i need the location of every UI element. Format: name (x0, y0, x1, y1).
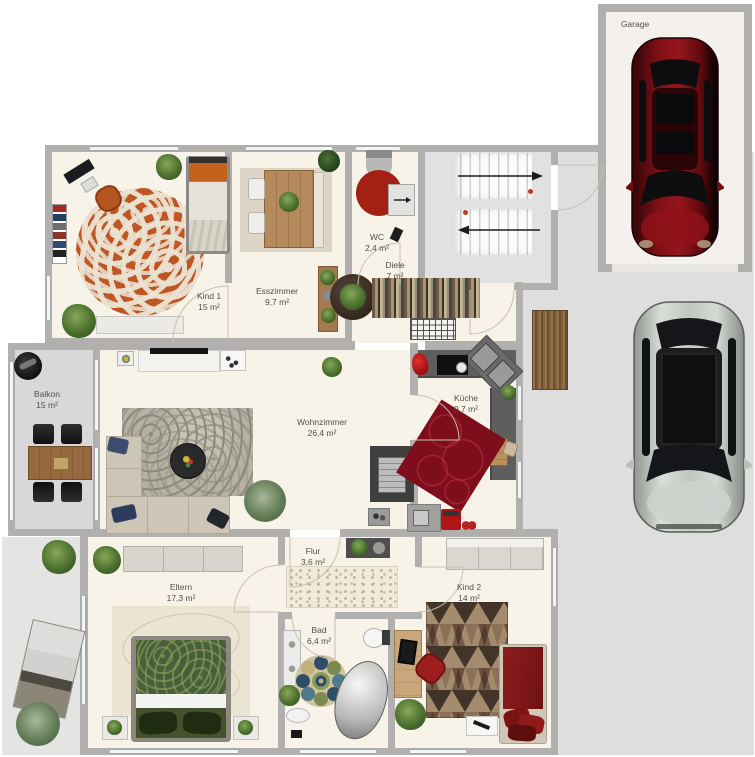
bookshelf (52, 204, 67, 264)
wall (278, 537, 285, 565)
record-disc (122, 355, 130, 363)
plant (395, 699, 426, 730)
stair-flight-lower (452, 209, 532, 255)
balcony-table (28, 446, 92, 480)
sink (286, 708, 310, 723)
round-swirl-rug (76, 188, 204, 316)
wall (551, 145, 558, 165)
plant (93, 546, 121, 574)
toilet-fixture (382, 630, 390, 645)
wardrobe (446, 538, 544, 570)
room-label-balkon: Balkon15 m² (34, 389, 60, 411)
wardrobe-top (447, 539, 543, 547)
toilet-tank (366, 150, 392, 158)
sideboard (96, 316, 184, 334)
sink-square (413, 510, 429, 526)
side-table (368, 508, 390, 526)
shoe-rack (410, 318, 456, 340)
kitchen-counter-bottom (407, 504, 441, 532)
room-label-flur: Flur3,6 m² (301, 546, 325, 568)
tablet (397, 639, 417, 665)
garage-wall (598, 4, 752, 12)
cups (462, 520, 476, 531)
striped-runner-rug (372, 278, 480, 318)
coffee-table (170, 443, 206, 479)
window (81, 596, 87, 704)
window (110, 749, 238, 754)
wc-cabinet (388, 184, 415, 216)
wall (335, 612, 422, 619)
plant (501, 385, 516, 400)
window (410, 749, 466, 754)
room-label-esszimmer: Esszimmer9,7 m² (256, 286, 298, 308)
window (517, 386, 522, 420)
car-red: ` (626, 36, 724, 258)
grill (14, 352, 42, 380)
bath-fixture (291, 730, 302, 738)
wall (551, 210, 558, 290)
plant (320, 270, 335, 285)
bed-duvet (189, 220, 227, 251)
grill-handle (19, 357, 38, 370)
plant (279, 685, 300, 706)
plant (351, 539, 368, 556)
stair-marker (528, 189, 533, 194)
window (46, 276, 51, 320)
bush (42, 540, 76, 574)
wall (415, 537, 422, 567)
tv (150, 348, 208, 354)
hall-rug (286, 566, 398, 608)
decor-bowl (373, 542, 385, 554)
plant (238, 720, 253, 735)
room-label-eltern: Eltern17,3 m² (167, 582, 196, 604)
room-label-diele: Diele7 m² (385, 260, 404, 282)
room-label-kind2: Kind 214 m² (457, 582, 481, 604)
bed-kind1 (186, 156, 230, 254)
wall (418, 145, 425, 290)
bed-pillow (138, 711, 177, 736)
espresso-machine (441, 509, 461, 530)
dining-chair (248, 178, 265, 200)
balcony-chair (61, 424, 82, 444)
wall (93, 343, 355, 350)
record-player (117, 351, 134, 366)
plant (340, 284, 366, 310)
bed-pillow (182, 711, 221, 735)
bowl (456, 362, 467, 373)
plant (107, 720, 122, 735)
car-silver (626, 298, 752, 536)
garage-wall (598, 4, 606, 272)
wall (516, 282, 523, 350)
floor-plan: ` (0, 0, 755, 757)
window (517, 462, 522, 498)
window (9, 362, 14, 520)
bed-duvet (503, 647, 543, 709)
wall (340, 529, 558, 537)
bed-pillow (507, 724, 536, 742)
window (94, 360, 99, 430)
window (90, 146, 178, 151)
wardrobe (123, 546, 243, 572)
table-tray (53, 457, 69, 470)
room-label-kind1: Kind 115 m² (197, 291, 221, 313)
window (94, 448, 99, 520)
room-label-bad: Bad6,4 m² (307, 625, 331, 647)
bed-sheet (136, 694, 226, 708)
window (300, 749, 376, 754)
bed-pillow (189, 163, 227, 181)
double-bed (131, 636, 231, 742)
window (552, 548, 557, 606)
balcony-chair (61, 482, 82, 502)
wall (285, 612, 292, 619)
speaker-box (220, 350, 246, 371)
dining-chair (248, 212, 265, 234)
bed-duvet (136, 640, 226, 694)
garage-wall (744, 4, 752, 272)
balcony-chair (33, 482, 54, 502)
window (246, 146, 332, 151)
plant (156, 154, 182, 180)
plant (279, 192, 299, 212)
espresso-top (443, 511, 459, 516)
bush (16, 702, 60, 746)
bed-kind2 (499, 644, 547, 744)
stair-marker (463, 210, 468, 215)
room-label-garage: Garage (621, 19, 649, 30)
room-label-kueche: Küche9,7 m² (454, 393, 478, 415)
garage-door (612, 264, 738, 272)
wall (558, 145, 598, 152)
doormat (532, 310, 568, 390)
plant (322, 357, 342, 377)
plant (318, 150, 340, 172)
stair-flight-upper (452, 153, 532, 199)
bed-mattress (189, 182, 227, 220)
room-label-wohnzimmer: Wohnzimmer26,4 m² (297, 417, 347, 439)
balcony-chair (33, 424, 54, 444)
room-label-wc: WC2,4 m² (365, 232, 389, 254)
plant (244, 480, 286, 522)
plant (62, 304, 96, 338)
